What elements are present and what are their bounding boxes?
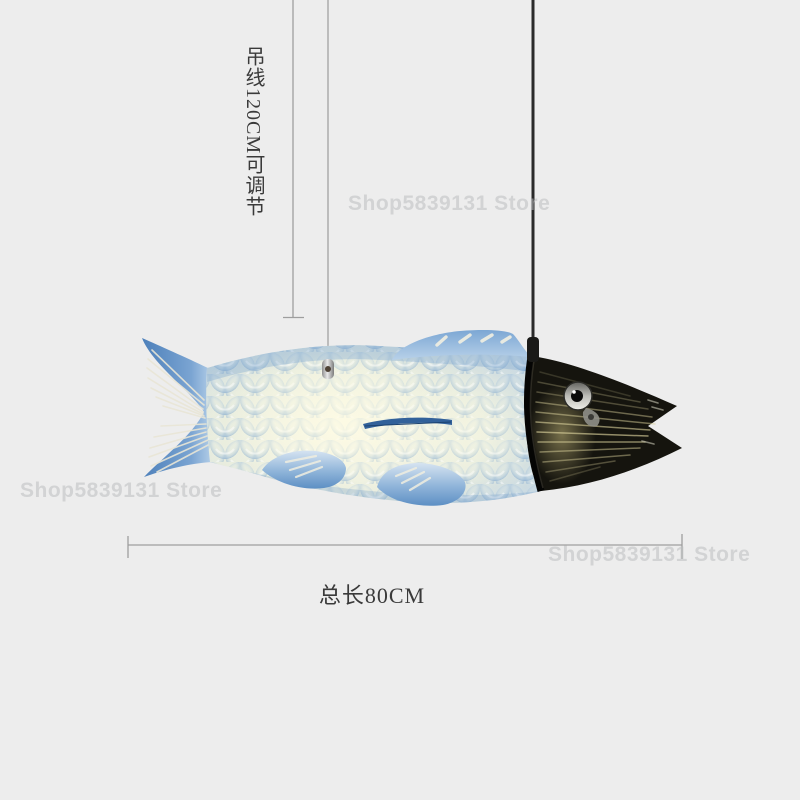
body-scales bbox=[200, 330, 545, 510]
fish-head bbox=[526, 337, 682, 491]
tail-fin bbox=[142, 338, 212, 477]
fish-body bbox=[200, 330, 545, 510]
product-dimension-image: 吊线120CM可调节 总长80CM Shop5839131 Store Shop… bbox=[0, 0, 800, 800]
wire-length-label: 吊线120CM可调节 bbox=[239, 46, 268, 266]
vertical-dimension-line bbox=[283, 0, 304, 318]
wire-fitting bbox=[322, 359, 334, 379]
horizontal-dimension-line bbox=[128, 534, 682, 559]
fish-lamp-illustration bbox=[0, 0, 800, 800]
cable-gland bbox=[527, 337, 539, 362]
total-length-label: 总长80CM bbox=[282, 578, 462, 610]
